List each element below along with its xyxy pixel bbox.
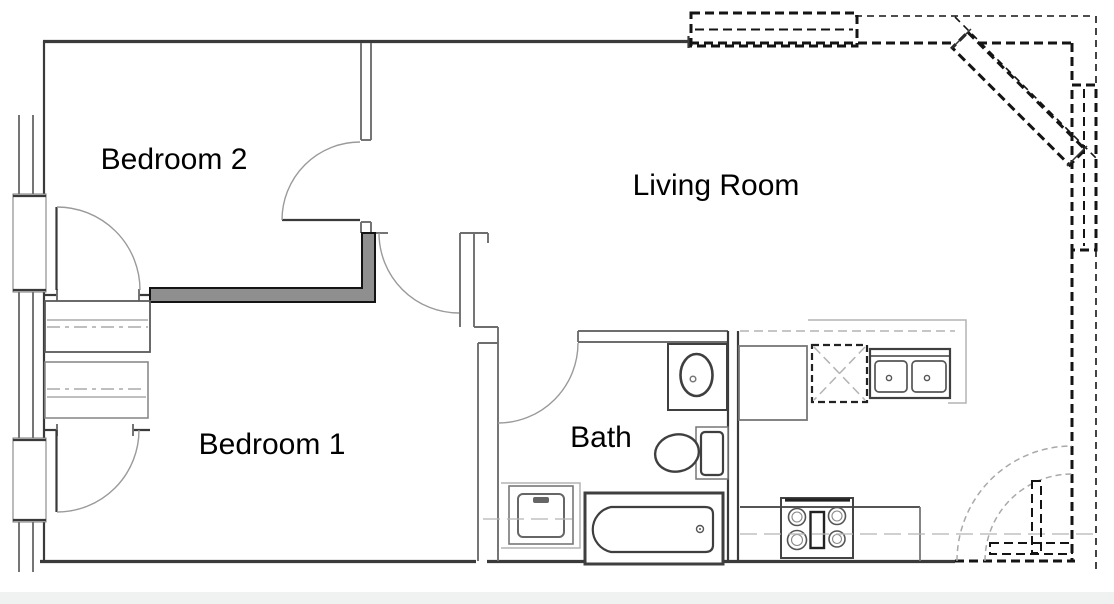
bedroom2-left-door-swing-arc [57,207,140,290]
dashed-door-swing-arc-inner [985,474,1072,561]
bath-fixtures [501,344,728,564]
footer-strip [0,592,1114,604]
bedroom2-label: Bedroom 2 [101,143,248,176]
bath-sink-drain [690,376,696,382]
solid-walls [19,36,955,572]
toilet-tank [701,432,723,475]
bedroom1-left-door-swing-arc [57,430,139,512]
bath-label: Bath [570,421,632,454]
living-room-label: Living Room [633,169,800,202]
range-center-griddle [811,512,825,548]
dishwasher-x-mark [814,347,865,400]
bathtub-drain-dot [699,528,701,530]
new-partition-wall [150,233,375,302]
bedroom1-label: Bedroom 1 [199,428,346,461]
bath-door-swing-arc [498,343,578,423]
bedroom1-entry-door-swing-arc [379,233,459,313]
floor-plan-canvas: Bedroom 2 Living Room Bedroom 1 Bath [0,0,1114,604]
dashed-walls [690,13,1097,573]
bathtub-basin [593,507,713,552]
bedroom2-top-door-swing-arc [282,142,360,220]
bath-sink-basin [681,354,713,396]
dashed-window-diagonal [952,32,1085,165]
window-bedroom1 [13,438,46,522]
floor-plan-page: Bedroom 2 Living Room Bedroom 1 Bath [0,0,1114,604]
newwall-jamb-ticks [361,222,371,233]
dashed-diagonal-outer-face [955,17,1097,159]
closet-2 [45,362,148,418]
refrigerator [739,346,807,420]
toilet-bowl [652,430,703,475]
kitchen-fixtures [739,320,966,561]
diagonal-window-end-tick-top [951,29,971,49]
closets [45,301,150,418]
range-burners [788,508,846,550]
window-bedroom2 [13,194,46,292]
washer-control-slot [533,497,549,503]
left-wall-windows [13,194,46,522]
